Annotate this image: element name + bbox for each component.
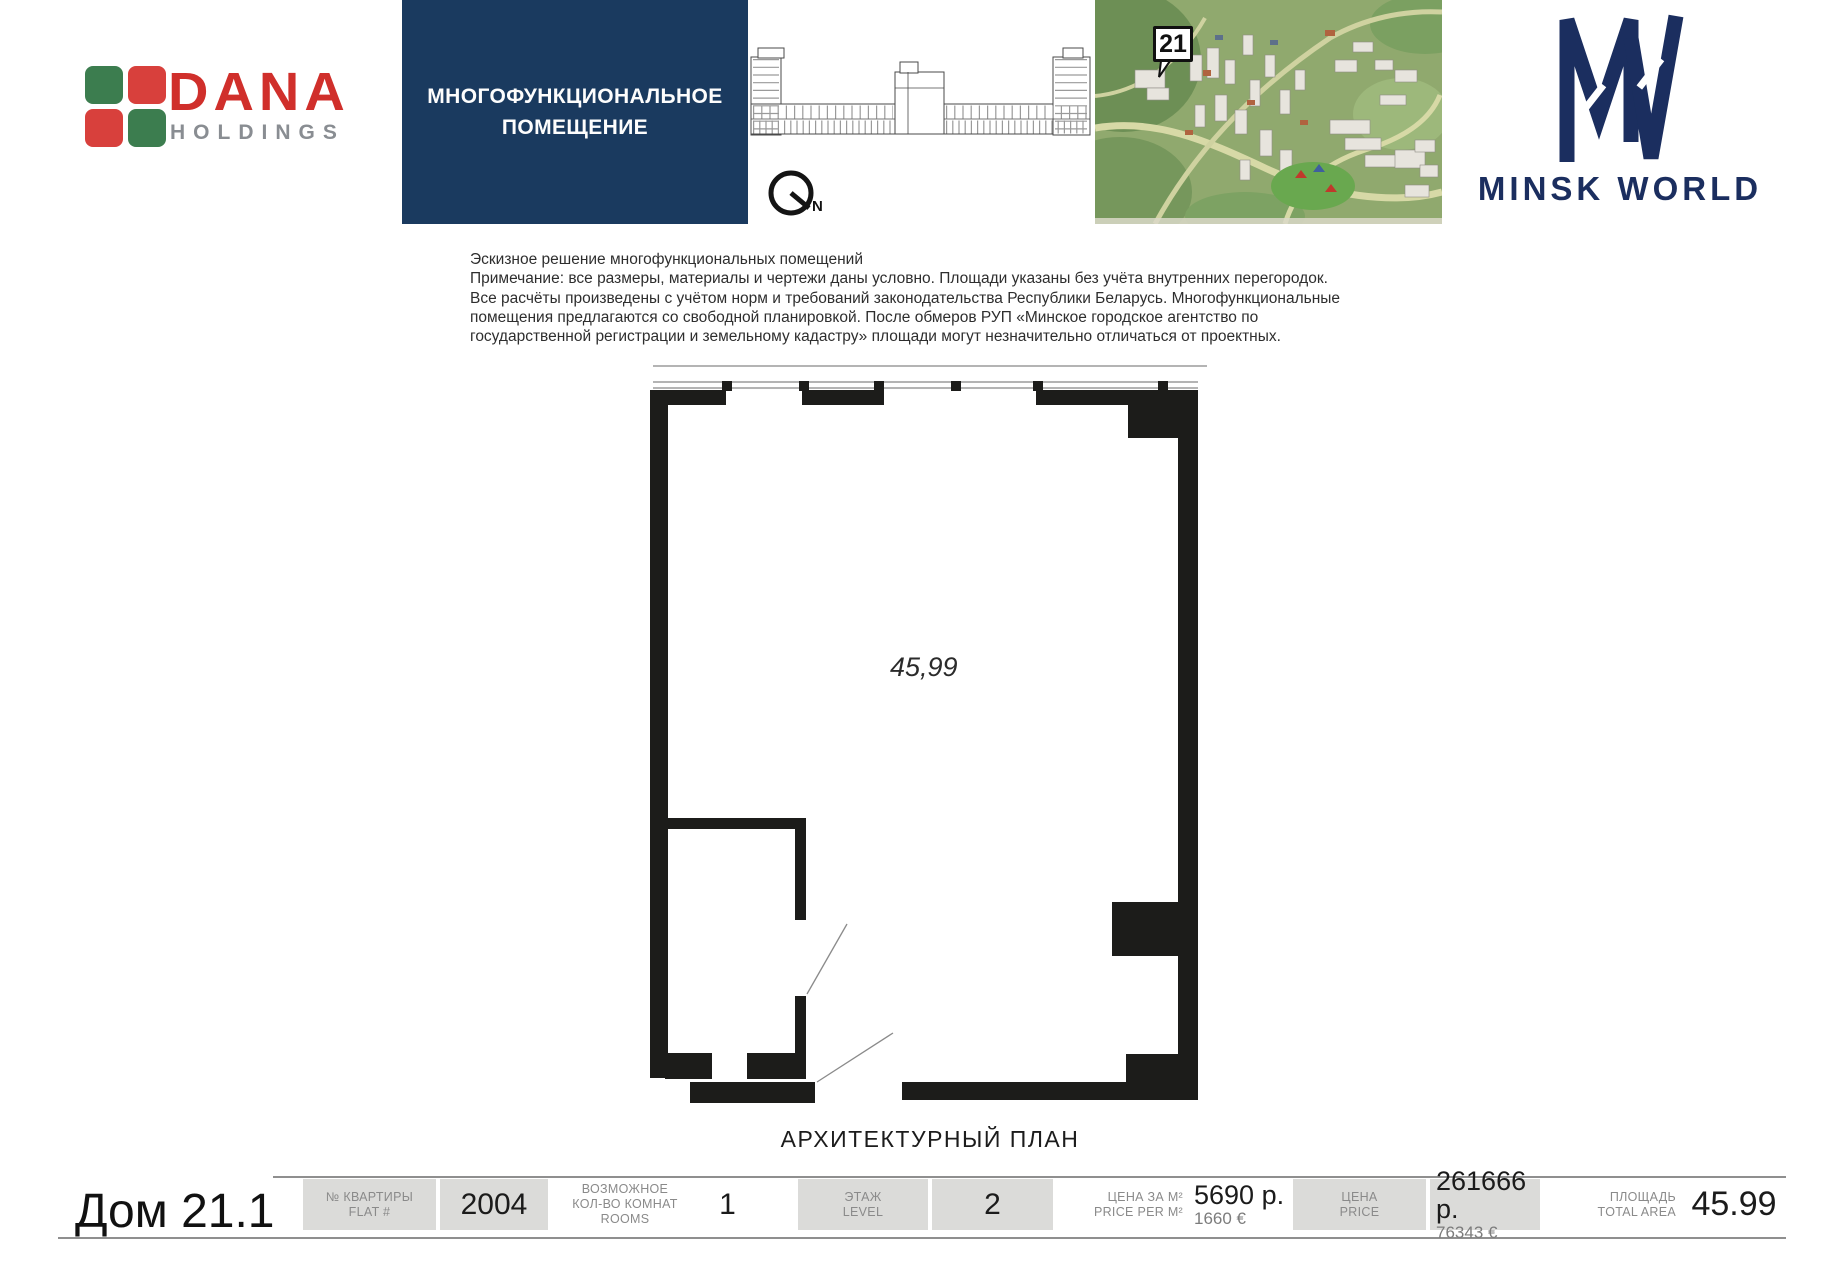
minsk-world-monogram-icon — [1546, 12, 1686, 164]
minsk-world-wordmark: MINSK WORLD — [1470, 170, 1770, 208]
area-label-en: TOTAL AREA — [1568, 1205, 1676, 1220]
map-marker-tail-icon — [1158, 60, 1174, 78]
level-value-cell: 2 — [932, 1179, 1053, 1230]
rooms-label-en: ROOMS — [601, 1212, 650, 1227]
flat-number-label-en: FLAT # — [349, 1205, 391, 1220]
disclaimer-line: помещения предлагаются со свободной план… — [470, 308, 1410, 327]
price-label-cell: ЦЕНА PRICE — [1293, 1179, 1426, 1230]
price-per-m2-value-cell: 5690 р. 1660 € — [1188, 1179, 1290, 1230]
room-area-label: 45,99 — [890, 652, 958, 683]
rooms-value-cell: 1 — [700, 1179, 755, 1230]
map-marker: 21 — [1153, 26, 1193, 62]
level-label-en: LEVEL — [843, 1205, 883, 1220]
area-label-ru: ПЛОЩАДЬ — [1568, 1190, 1676, 1205]
rooms-label-ru2: КОЛ-ВО КОМНАТ — [572, 1197, 677, 1212]
floor-plan-drawing — [650, 360, 1210, 1110]
disclaimer-text: Эскизное решение многофункциональных пом… — [470, 250, 1410, 346]
area-value: 45.99 — [1691, 1185, 1776, 1224]
building-title: Дом 21.1 — [75, 1184, 275, 1239]
property-type-banner: МНОГОФУНКЦИОНАЛЬНОЕ ПОМЕЩЕНИЕ — [402, 0, 748, 224]
price-value-cell: 261666 р. 76343 € — [1430, 1179, 1540, 1230]
rooms-value: 1 — [719, 1188, 736, 1222]
area-value-cell: 45.99 — [1684, 1179, 1784, 1230]
property-type-label: МНОГОФУНКЦИОНАЛЬНОЕ ПОМЕЩЕНИЕ — [420, 81, 730, 143]
level-label-ru: ЭТАЖ — [844, 1190, 881, 1205]
flat-number-value-cell: 2004 — [440, 1179, 548, 1230]
level-value: 2 — [984, 1188, 1001, 1222]
dana-square-green — [128, 109, 166, 147]
masterplan-aerial-image — [1095, 0, 1442, 224]
footer-divider-top — [273, 1176, 1786, 1178]
price-label-en: PRICE — [1340, 1205, 1380, 1220]
disclaimer-line: Эскизное решение многофункциональных пом… — [470, 250, 1410, 269]
building-overview-plan — [748, 42, 1093, 162]
disclaimer-line: Примечание: все размеры, материалы и чер… — [470, 269, 1410, 288]
price-per-m2-value-eur: 1660 € — [1194, 1209, 1246, 1229]
flat-number-label-cell: № КВАРТИРЫ FLAT # — [303, 1179, 436, 1230]
rooms-label-ru1: ВОЗМОЖНОЕ — [582, 1182, 668, 1197]
level-label-cell: ЭТАЖ LEVEL — [798, 1179, 928, 1230]
dana-square-red — [85, 109, 123, 147]
map-marker-label: 21 — [1159, 30, 1187, 59]
datasheet-page: DANA HOLDINGS МНОГОФУНКЦИОНАЛЬНОЕ ПОМЕЩЕ… — [0, 0, 1840, 1262]
area-label-cell: ПЛОЩАДЬ TOTAL AREA — [1568, 1179, 1676, 1230]
compass-north-label: N — [812, 198, 823, 215]
dana-logo-subtitle: HOLDINGS — [170, 121, 345, 145]
price-per-m2-label-en: PRICE PER M² — [1055, 1205, 1183, 1220]
price-per-m2-value-byn: 5690 р. — [1194, 1181, 1284, 1209]
dana-square-red — [128, 66, 166, 104]
price-value-byn: 261666 р. — [1436, 1167, 1540, 1223]
plan-caption: АРХИТЕКТУРНЫЙ ПЛАН — [650, 1126, 1210, 1153]
dana-square-green — [85, 66, 123, 104]
flat-number-label-ru: № КВАРТИРЫ — [326, 1190, 413, 1205]
price-value-eur: 76343 € — [1436, 1223, 1497, 1243]
dana-logo-squares-icon — [85, 66, 167, 148]
price-per-m2-label-cell: ЦЕНА ЗА М² PRICE PER M² — [1055, 1179, 1183, 1230]
footer-divider-bottom — [58, 1237, 1786, 1239]
disclaimer-line: Все расчёты произведены с учётом норм и … — [470, 289, 1410, 308]
rooms-label-cell: ВОЗМОЖНОЕ КОЛ-ВО КОМНАТ ROOMS — [558, 1179, 692, 1230]
price-label-ru: ЦЕНА — [1341, 1190, 1377, 1205]
disclaimer-line: государственной регистрации и земельному… — [470, 327, 1410, 346]
flat-number-value: 2004 — [461, 1188, 528, 1222]
price-per-m2-label-ru: ЦЕНА ЗА М² — [1055, 1190, 1183, 1205]
dana-logo-word: DANA — [168, 60, 350, 122]
